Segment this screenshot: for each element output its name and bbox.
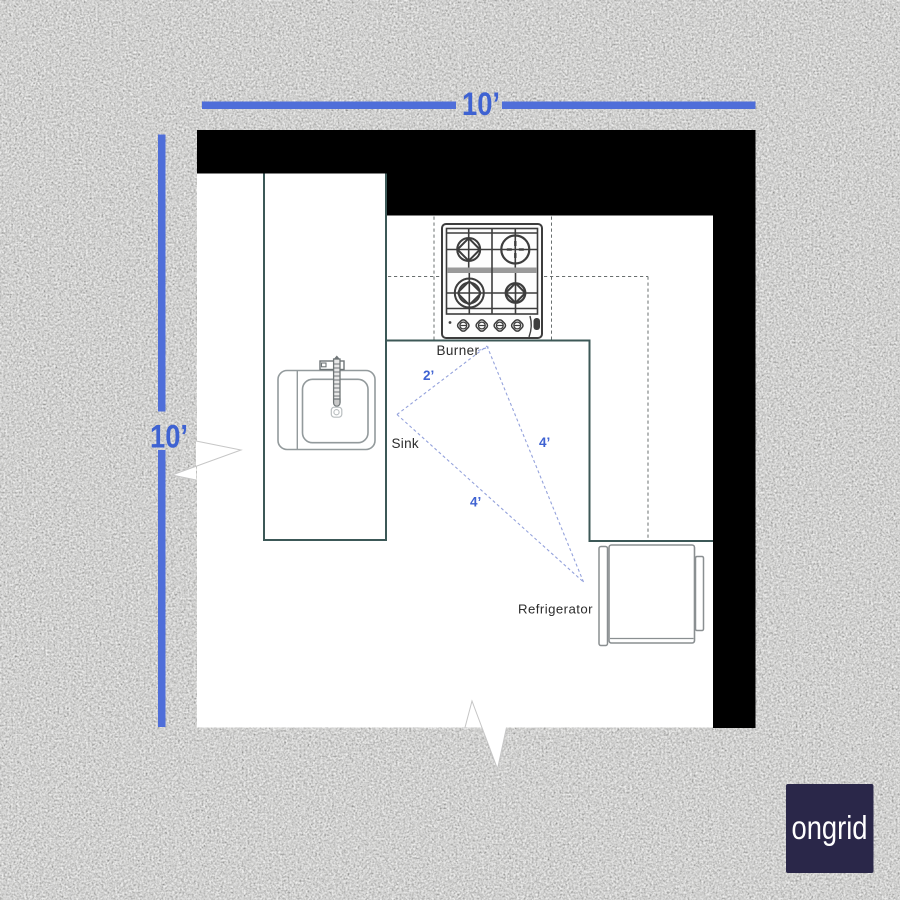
svg-text:Refrigerator: Refrigerator bbox=[518, 602, 593, 617]
svg-text:10’: 10’ bbox=[150, 419, 188, 455]
svg-text:Burner: Burner bbox=[437, 343, 480, 358]
svg-text:4’: 4’ bbox=[470, 495, 481, 510]
svg-text:4’: 4’ bbox=[539, 435, 550, 450]
svg-text:Sink: Sink bbox=[392, 436, 419, 451]
svg-text:ongrid: ongrid bbox=[792, 809, 868, 846]
svg-text:10’: 10’ bbox=[462, 86, 500, 122]
svg-text:2’: 2’ bbox=[423, 368, 434, 383]
